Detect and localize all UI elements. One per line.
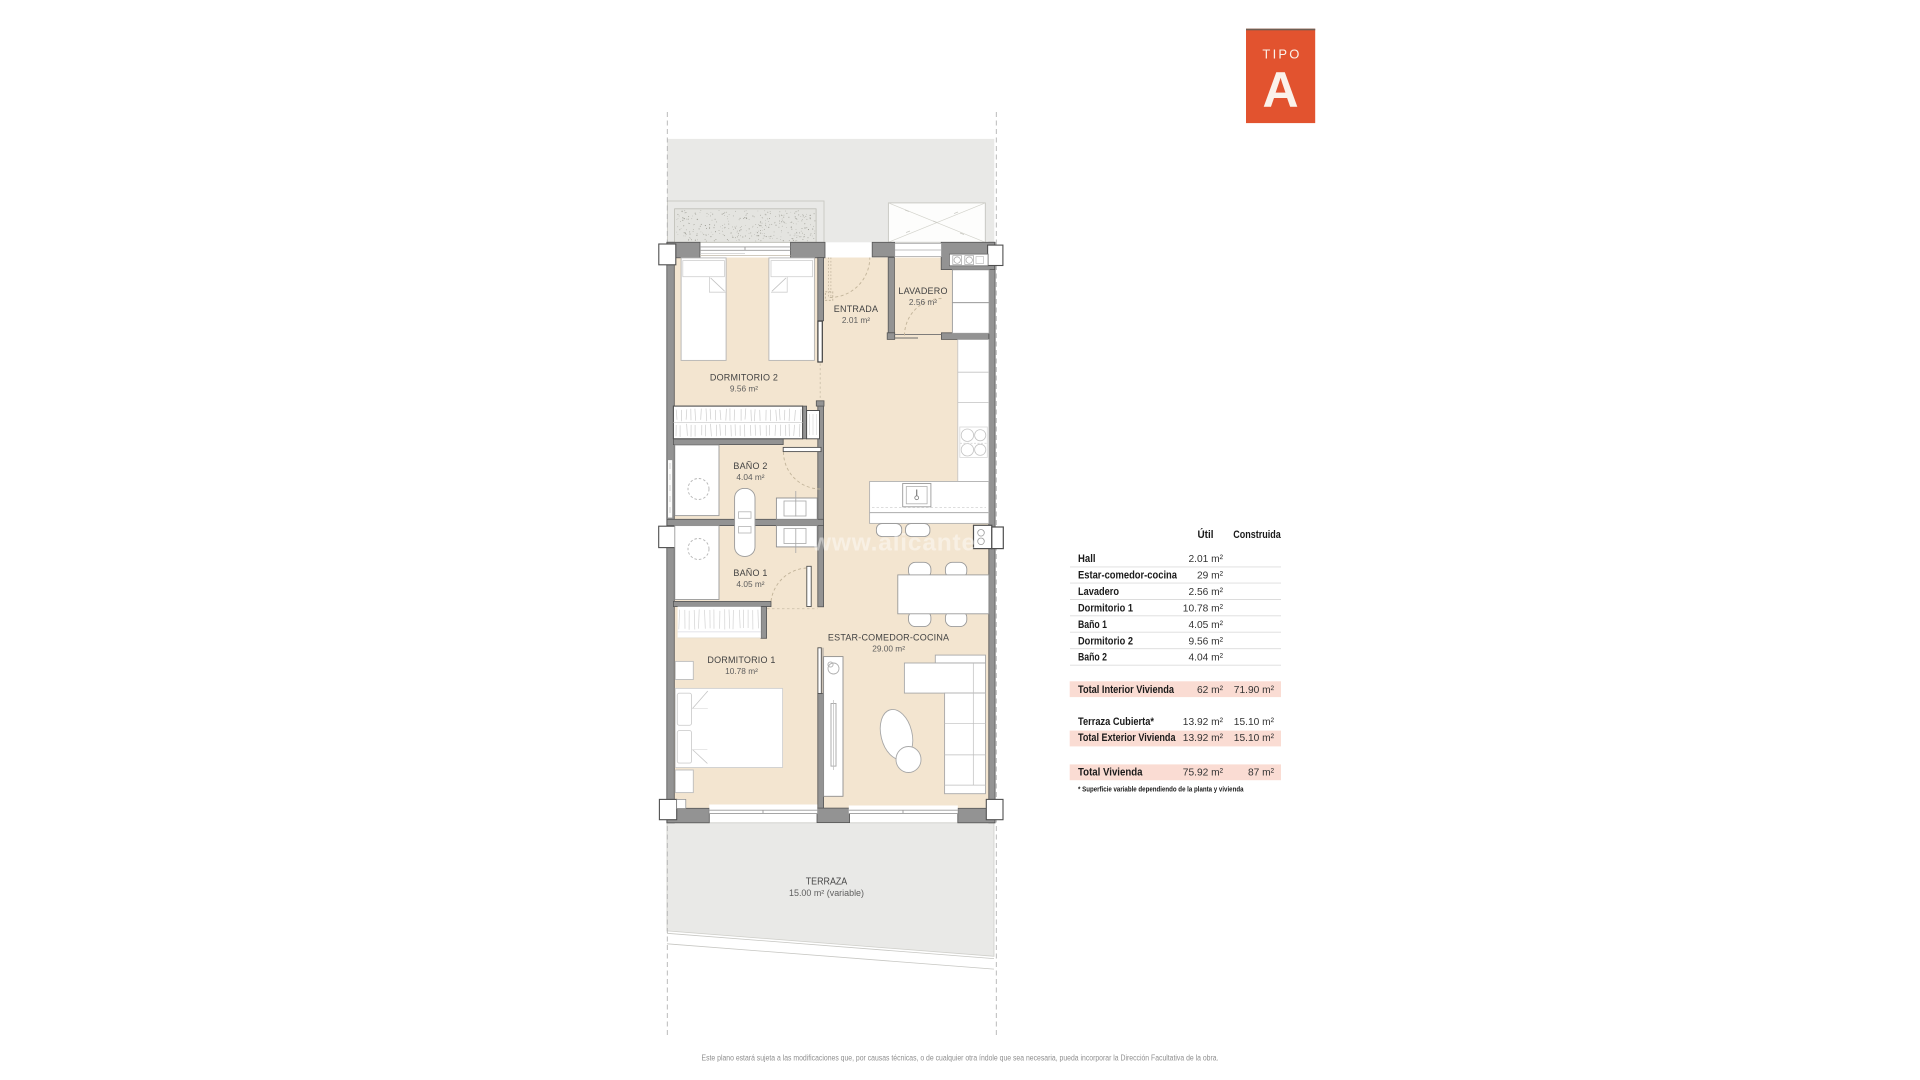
svg-text:Dormitorio 1: Dormitorio 1 [1078,603,1133,615]
svg-text:15.10 m²: 15.10 m² [1234,733,1275,744]
svg-text:4.04 m²: 4.04 m² [1188,653,1223,664]
svg-text:71.90 m²: 71.90 m² [1234,685,1275,696]
svg-text:Construida: Construida [1233,529,1281,541]
svg-text:4.05 m²: 4.05 m² [736,579,764,589]
svg-text:29.00 m²: 29.00 m² [872,644,905,654]
svg-text:TIPO: TIPO [1262,47,1301,62]
svg-text:Total Vivienda: Total Vivienda [1078,766,1143,778]
svg-text:Baño 2: Baño 2 [1078,652,1107,664]
svg-text:2.56 m²: 2.56 m² [909,297,937,307]
svg-text:4.05 m²: 4.05 m² [1188,620,1223,631]
svg-text:2.56 m²: 2.56 m² [1188,587,1223,598]
svg-text:10.78 m²: 10.78 m² [1183,604,1224,615]
svg-text:62 m²: 62 m² [1197,685,1224,696]
svg-text:DORMITORIO 2: DORMITORIO 2 [710,373,778,383]
svg-text:Este plano estará sujeta a las: Este plano estará sujeta a las modificac… [702,1054,1219,1063]
svg-text:ESTAR-COMEDOR-COCINA: ESTAR-COMEDOR-COCINA [828,633,949,643]
svg-text:10.78 m²: 10.78 m² [725,666,758,676]
svg-text:2.01 m²: 2.01 m² [1188,554,1223,565]
svg-text:9.56 m²: 9.56 m² [730,384,758,394]
svg-text:Útil: Útil [1198,528,1214,541]
svg-text:Baño 1: Baño 1 [1078,619,1107,631]
svg-text:13.92 m²: 13.92 m² [1183,733,1224,744]
svg-text:87 m²: 87 m² [1248,767,1275,778]
svg-text:75.92 m²: 75.92 m² [1183,767,1224,778]
svg-text:29 m²: 29 m² [1197,571,1224,582]
svg-text:13.92 m²: 13.92 m² [1183,717,1224,728]
svg-text:www.alicante: www.alicante [811,530,976,557]
svg-text:Total Interior Vivienda: Total Interior Vivienda [1078,684,1175,696]
svg-text:TERRAZA: TERRAZA [806,876,848,887]
svg-text:Estar-comedor-cocina: Estar-comedor-cocina [1078,570,1178,582]
svg-text:15.10 m²: 15.10 m² [1234,717,1275,728]
svg-text:* Superficie variable dependie: * Superficie variable dependiendo de la … [1078,785,1244,794]
svg-text:DORMITORIO 1: DORMITORIO 1 [707,655,775,665]
svg-text:Terraza Cubierta*: Terraza Cubierta* [1078,716,1155,728]
svg-text:2.01 m²: 2.01 m² [842,315,870,325]
svg-text:LAVADERO: LAVADERO [898,286,947,296]
svg-text:9.56 m²: 9.56 m² [1188,636,1223,647]
svg-text:BAÑO 2: BAÑO 2 [733,461,767,471]
svg-text:Total Exterior Vivienda: Total Exterior Vivienda [1078,732,1176,744]
svg-text:Hall: Hall [1078,553,1096,565]
svg-text:15.00 m² (variable): 15.00 m² (variable) [789,888,864,898]
svg-text:4.04 m²: 4.04 m² [736,472,764,482]
svg-text:A: A [1262,62,1298,118]
svg-text:ENTRADA: ENTRADA [834,304,878,314]
svg-text:Lavadero: Lavadero [1078,586,1119,598]
svg-text:BAÑO 1: BAÑO 1 [733,568,767,578]
svg-text:Dormitorio 2: Dormitorio 2 [1078,635,1133,647]
